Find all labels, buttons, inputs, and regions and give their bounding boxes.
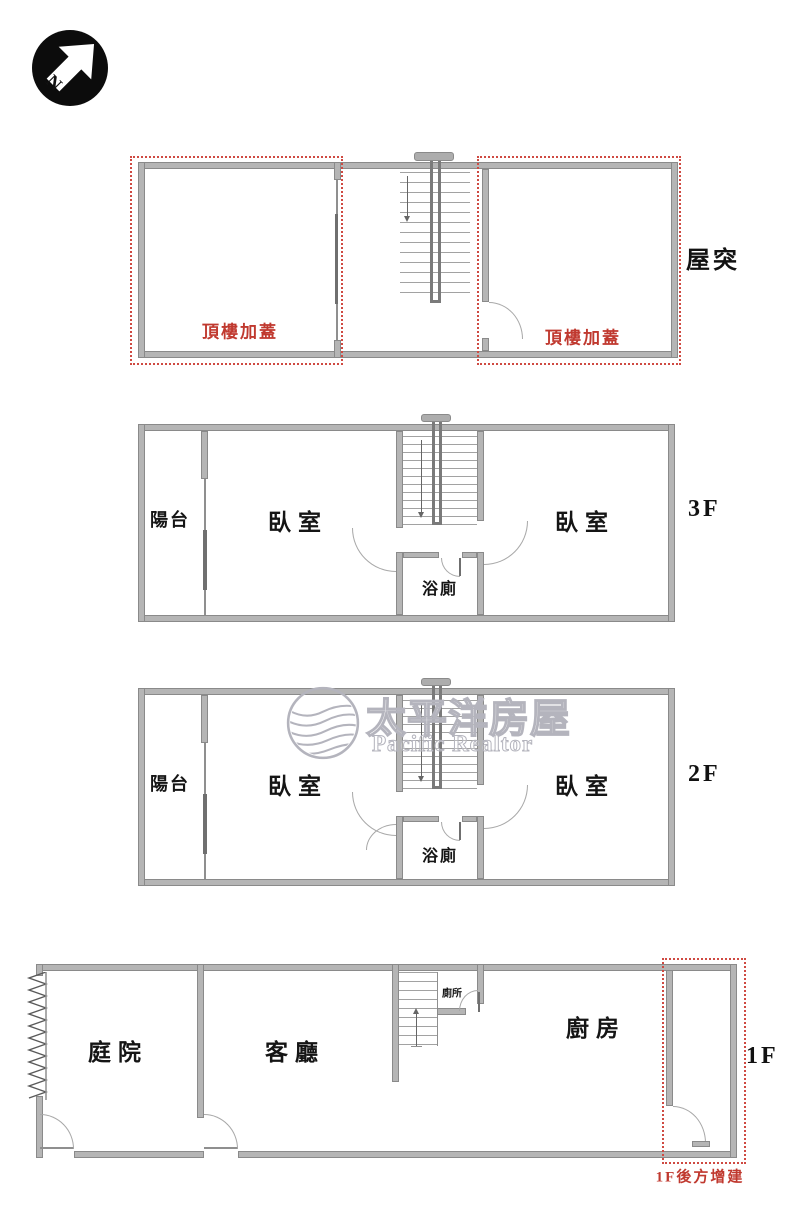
room-label-courtyard: 庭院 [88, 1033, 148, 1067]
rear-addition-label: 1F後方增建 [656, 1166, 745, 1187]
room-label-bedroom-right: 臥室 [555, 503, 615, 537]
wall [36, 964, 737, 971]
door-leaf [478, 992, 480, 1012]
stair-tread [399, 1017, 437, 1018]
pacific-realtor-logo-icon [284, 684, 364, 764]
stair-tread [399, 972, 437, 973]
door-arc [40, 1114, 74, 1149]
room-label-bath: 浴廁 [422, 842, 458, 866]
stair-tread [399, 1044, 437, 1045]
floor-label-2f: 2F [688, 761, 721, 788]
room-label-toilet: 廁所 [442, 985, 462, 1000]
roof-addition-label-right: 頂樓加蓋 [545, 324, 621, 349]
room-label-balcony: 陽台 [150, 770, 190, 796]
floor-label-1f: 1F [746, 1043, 779, 1070]
stair-tread [399, 990, 437, 991]
fence-zigzag [26, 972, 48, 1100]
door-arc [204, 1114, 238, 1149]
room-label-bedroom-left: 臥室 [268, 503, 328, 537]
wall [392, 964, 399, 1082]
room-label-bedroom-right: 臥室 [555, 767, 615, 801]
floor-label-3f: 3F [688, 496, 721, 523]
floor-plan-canvas: N 頂樓加蓋 頂樓加蓋 屋突 [0, 0, 800, 1217]
stair-tread [399, 1035, 437, 1036]
roof-addition-label-left: 頂樓加蓋 [202, 318, 278, 343]
room-label-balcony: 陽台 [150, 506, 190, 532]
stair-arrow-icon [413, 1008, 419, 1014]
wall [197, 964, 204, 1118]
stair-tread [399, 981, 437, 982]
stair-tread [399, 1026, 437, 1027]
stair-base-tick [411, 1046, 422, 1047]
wall [74, 1151, 204, 1158]
floor-label-roof: 屋突 [686, 240, 740, 275]
stair-tread [399, 999, 437, 1000]
watermark-brand-en: Pacific Realtor [372, 731, 533, 757]
room-label-bath: 浴廁 [422, 575, 458, 599]
room-label-bedroom-left: 臥室 [268, 767, 328, 801]
room-label-kitchen: 廚房 [566, 1009, 626, 1043]
stair-direction-line [416, 1014, 417, 1046]
room-label-living: 客廳 [265, 1033, 325, 1067]
rear-addition-outline [662, 958, 746, 1164]
